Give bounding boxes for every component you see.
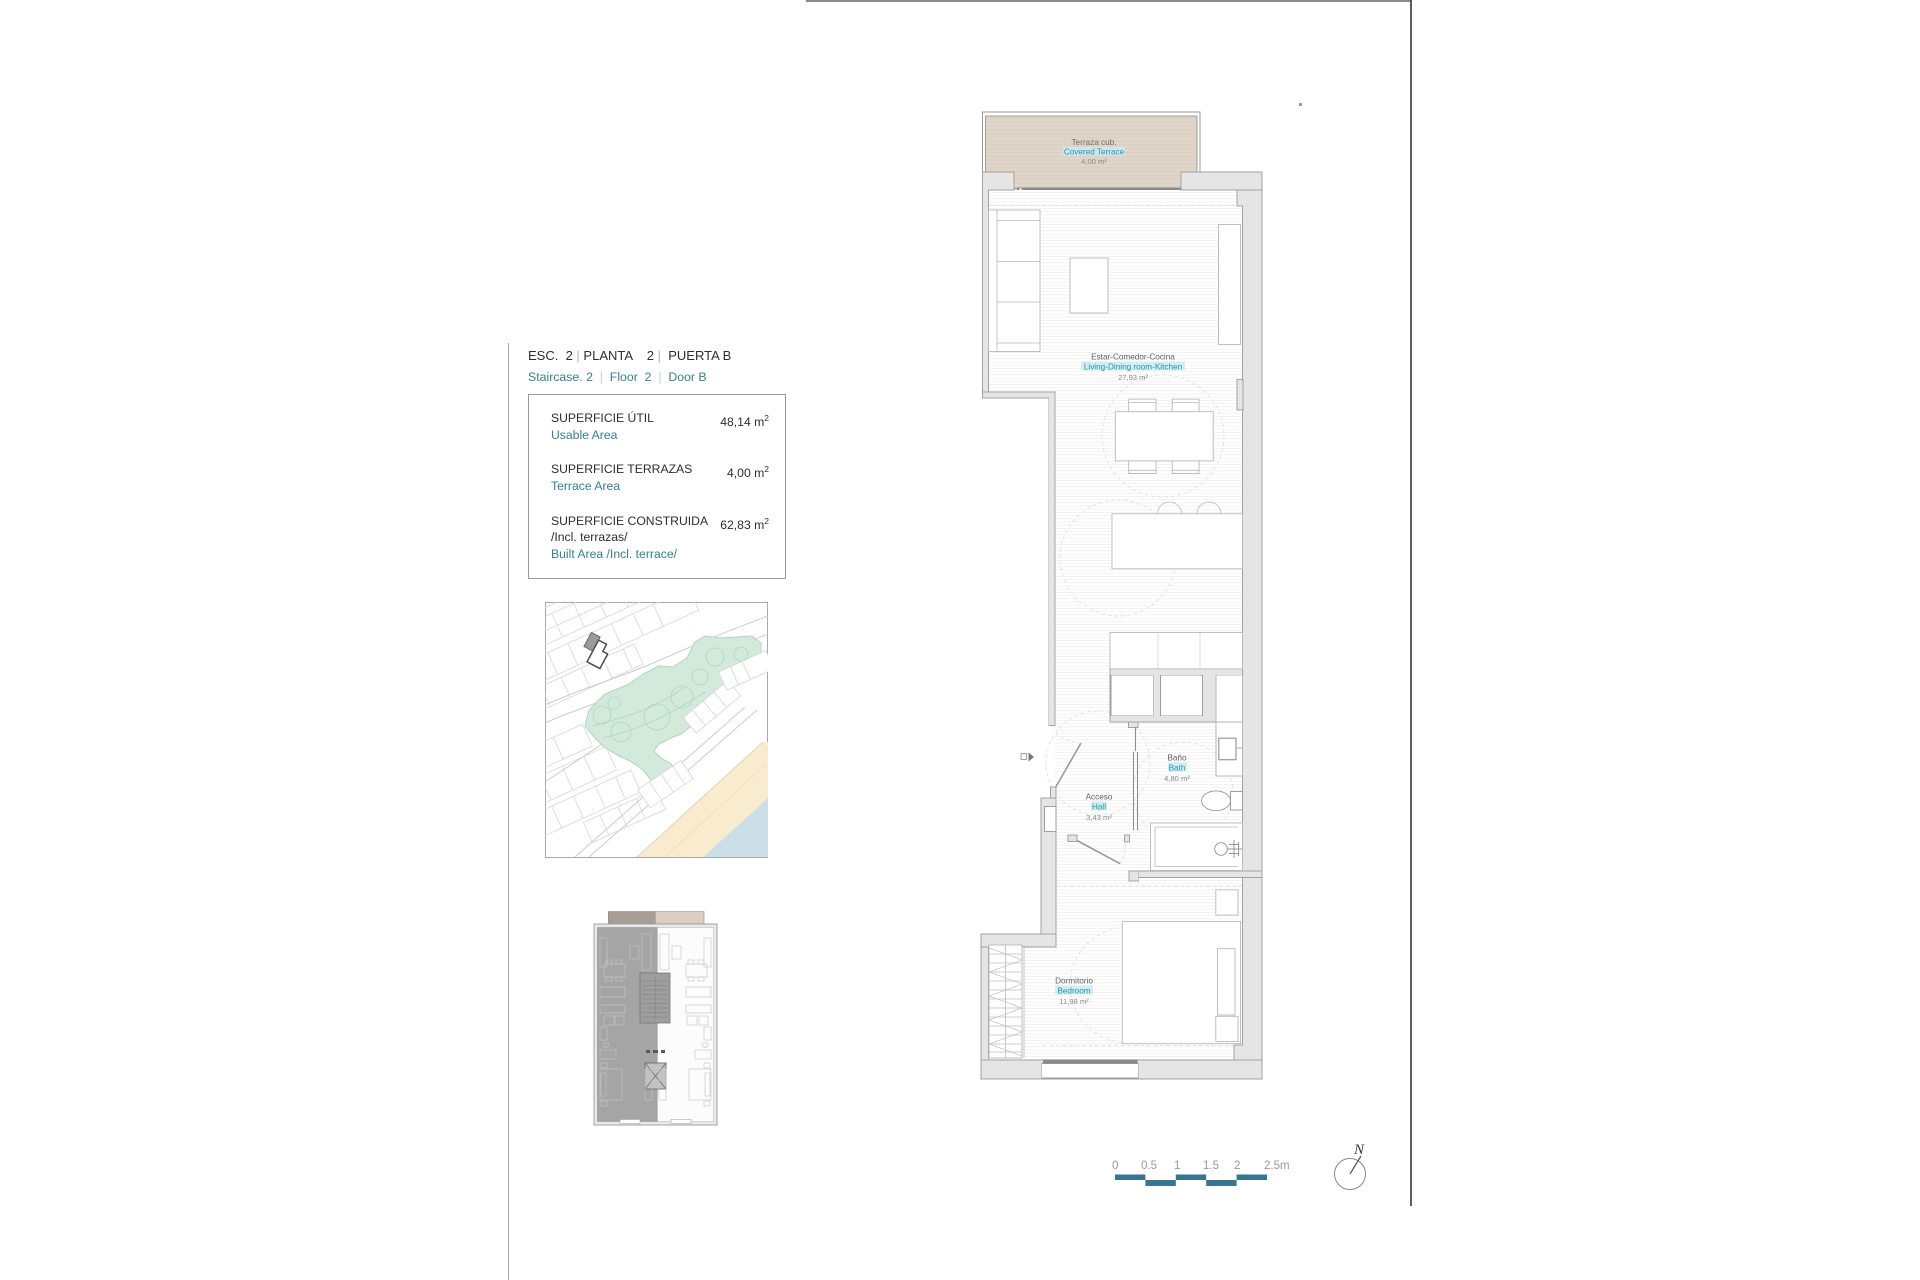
svg-text:27,93 m²: 27,93 m² bbox=[1118, 373, 1148, 382]
svg-text:Bedroom: Bedroom bbox=[1057, 987, 1090, 996]
svg-text:Hall: Hall bbox=[1092, 803, 1106, 812]
svg-text:11,98 m²: 11,98 m² bbox=[1059, 997, 1089, 1006]
svg-text:Baño: Baño bbox=[1167, 754, 1187, 763]
svg-text:0: 0 bbox=[1112, 1160, 1118, 1172]
svg-text:Bath: Bath bbox=[1169, 764, 1186, 773]
svg-text:4,80 m²: 4,80 m² bbox=[1164, 774, 1190, 783]
svg-text:Dormitorio: Dormitorio bbox=[1055, 977, 1093, 986]
svg-text:3,43 m²: 3,43 m² bbox=[1086, 813, 1112, 822]
svg-text:Acceso: Acceso bbox=[1086, 793, 1113, 802]
svg-text:Covered Terrace: Covered Terrace bbox=[1064, 148, 1125, 157]
svg-text:Living-Dining room-Kitchen: Living-Dining room-Kitchen bbox=[1084, 363, 1183, 372]
svg-text:Estar-Comedor-Cocina: Estar-Comedor-Cocina bbox=[1091, 353, 1175, 362]
svg-text:1: 1 bbox=[1174, 1160, 1180, 1172]
svg-text:N: N bbox=[1353, 1142, 1365, 1158]
svg-text:0.5: 0.5 bbox=[1141, 1160, 1157, 1172]
svg-text:1.5: 1.5 bbox=[1203, 1160, 1219, 1172]
svg-text:2: 2 bbox=[1234, 1160, 1240, 1172]
svg-text:4,00 m²: 4,00 m² bbox=[1081, 157, 1107, 166]
svg-text:Terraza cub.: Terraza cub. bbox=[1071, 138, 1116, 147]
svg-text:2.5m: 2.5m bbox=[1264, 1160, 1290, 1172]
